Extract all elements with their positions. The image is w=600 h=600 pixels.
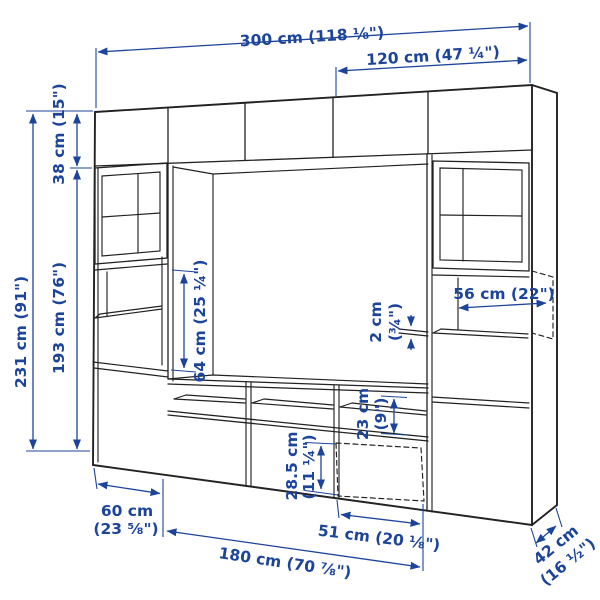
right-bottom-door xyxy=(432,397,529,408)
soffit-underside xyxy=(173,164,428,174)
left-shelf xyxy=(95,306,162,318)
dim-bench-width-label: 180 cm (70 ⅞") xyxy=(218,544,353,582)
left-column xyxy=(93,163,173,462)
dim-unit-width-inches: (23 ⅝") xyxy=(93,520,158,538)
bench-shelf-2 xyxy=(252,399,333,409)
dim-shelf-spacing: 23 cm (9") xyxy=(354,388,394,440)
dim-lower-section-height: 193 cm (76") xyxy=(50,170,77,449)
dim-lower-section-height-label: 193 cm (76") xyxy=(50,262,68,374)
side-panel xyxy=(532,85,557,525)
bench-shelf-1 xyxy=(174,395,245,403)
diagram-canvas: 300 cm (118 ⅛") 120 cm (47 ¼") 231 cm (9… xyxy=(0,0,600,600)
right-shelf xyxy=(433,329,528,338)
dim-unit-width: 60 cm (23 ⅝") xyxy=(93,484,160,538)
phantom-shelf-outline xyxy=(532,271,553,339)
dim-drawer-height-inches: (11 ¼") xyxy=(300,434,318,499)
furniture-dimension-diagram: 300 cm (118 ⅛") 120 cm (47 ¼") 231 cm (9… xyxy=(0,0,600,600)
dim-total-height: 231 cm (91") xyxy=(12,114,33,449)
dim-total-width-label: 300 cm (118 ⅛") xyxy=(239,24,384,51)
dim-drawer-height: 28.5 cm (11 ¼") xyxy=(283,432,321,501)
dim-gap-inches: (¾") xyxy=(386,303,404,341)
dim-right-section-width: 120 cm (47 ¼") xyxy=(338,43,527,71)
dim-top-cabinet-height: 38 cm (15") xyxy=(50,83,77,185)
dim-open-section-height-label: 64 cm (25 ¼") xyxy=(191,260,209,383)
dim-top-cabinet-height-label: 38 cm (15") xyxy=(50,83,68,185)
dim-depth: 42 cm (16 ½") xyxy=(530,522,599,590)
dim-shelf-spacing-inches: (9") xyxy=(372,397,390,430)
dim-open-section-height: 64 cm (25 ¼") xyxy=(184,260,209,383)
dim-drawer-height-value: 28.5 cm xyxy=(283,432,301,501)
dim-shelf-spacing-value: 23 cm xyxy=(354,388,372,440)
dim-gap: 2 cm (¾") xyxy=(367,301,411,350)
dim-unit-width-value: 60 cm xyxy=(101,502,153,520)
dim-total-height-label: 231 cm (91") xyxy=(12,276,30,388)
dim-gap-value: 2 cm xyxy=(367,301,385,343)
highlighted-drawer-outline xyxy=(336,443,424,501)
furniture-drawing xyxy=(93,85,557,525)
left-bottom-door xyxy=(93,362,168,377)
dim-shelf-width: 56 cm (22") xyxy=(453,285,555,308)
dimension-annotations: 300 cm (118 ⅛") 120 cm (47 ¼") 231 cm (9… xyxy=(12,22,599,590)
dim-shelf-width-label: 56 cm (22") xyxy=(453,285,555,303)
